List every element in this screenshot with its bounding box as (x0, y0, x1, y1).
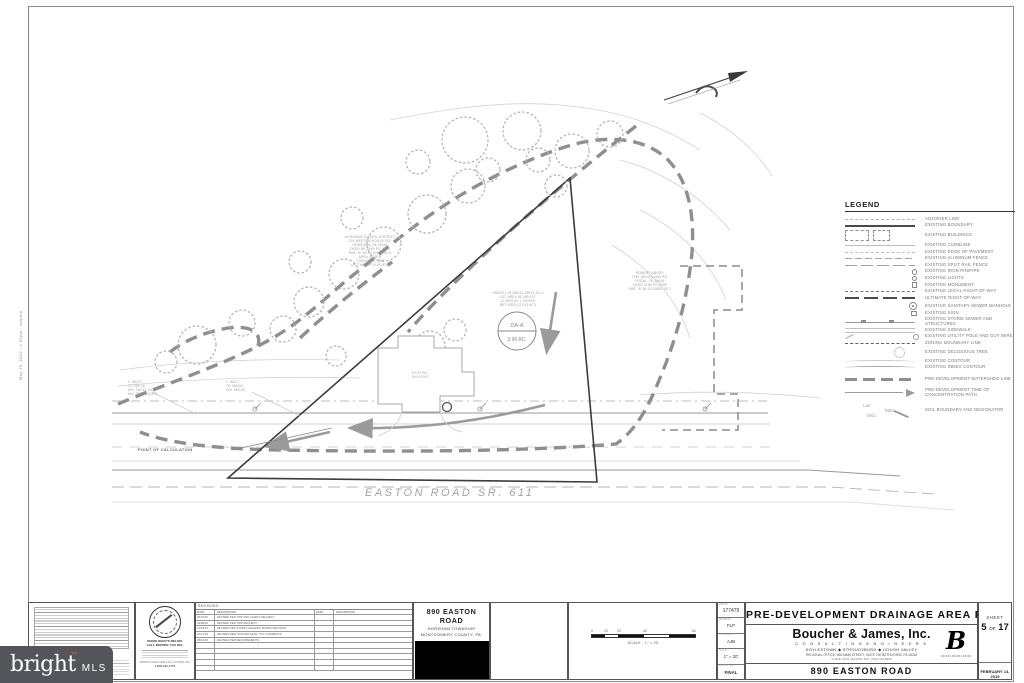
watershed-line-symbol (845, 378, 919, 381)
sanitary-sewer-manhole-symbol (845, 302, 919, 310)
da-label: DA-A (510, 323, 523, 329)
aluminum-fence-symbol (845, 258, 919, 259)
lights-symbol (845, 276, 919, 282)
storm-sewer-symbol (845, 322, 919, 323)
sheet-number: 5 OF 17 (979, 622, 1011, 633)
legend-item: EXISTING DECIDUOUS TREE (845, 347, 1015, 358)
job-info-column: JOB NO. 177479 DRAWN BY: FLP CHECKED BY:… (717, 602, 745, 680)
bj-logo-icon: B (941, 628, 971, 654)
utility-poles (253, 403, 711, 411)
adjoiner-line-symbol (845, 219, 919, 220)
plan-sheet: DA-A 3.96 AC. EASTON ROAD SR. 611 HORSHA… (0, 0, 1024, 683)
da-area-value: 3.96 AC. (507, 337, 526, 343)
graphic-scale-bar (591, 634, 696, 638)
adjoiner-owner-annotation: ROBERT AMORY 7494 WOODLAND RD. RYDAL, PA… (602, 271, 698, 291)
legend-panel: LEGEND ADJOINER LINE EXISTING BOUNDARY E… (845, 200, 1015, 419)
engineering-firm-block: Boucher & James, Inc. C O N S U L T I N … (746, 624, 977, 663)
monument-symbol (845, 282, 919, 288)
bright-accent-dot-icon: ™ (70, 651, 78, 660)
sign-symbol (845, 311, 919, 316)
project-township: HORSHAM TOWNSHIP (414, 626, 489, 631)
revisions-title: REVISIONS: (196, 603, 412, 610)
zoning-boundary-symbol (845, 343, 919, 344)
curbline-symbol (845, 245, 919, 246)
legend-item: ULTIMATE RIGHT-OF-WAY (845, 295, 1015, 302)
legend-item: EXISTING ALUMINUM FENCE (845, 255, 1015, 262)
existing-boundary-symbol (845, 225, 919, 227)
inlet-annotation-left: 1' INLET TG 368.26 INV. 363.67 (IN) INV.… (128, 380, 180, 396)
north-arrow-icon (664, 71, 748, 104)
time-of-concentration-symbol (845, 392, 919, 393)
split-rail-fence-symbol (845, 265, 919, 266)
checked-by-cell: CHECKED BY: AJB (718, 634, 744, 649)
legend-item: EXISTING LIGHTS (845, 275, 1015, 282)
bright-wordmark: bright ™ (10, 652, 76, 677)
contour-symbol (845, 360, 919, 363)
legend-item: EXISTING BUILDINGS (845, 229, 1015, 242)
iron-pin-symbol (845, 269, 919, 275)
status-cell: PLOT STYLE: FINAL (718, 665, 744, 679)
legend-item: EXISTING LEGAL RIGHT-OF-WAY (845, 288, 1015, 295)
index-contour-symbol (845, 366, 919, 369)
plot-file-stamp: May 29, 2019 - 1:05pm - mcphie (18, 200, 23, 380)
project-name-row: 890 EASTON ROAD (746, 663, 977, 679)
disclaimer-fine-print (34, 607, 129, 649)
pa-one-call-seal-icon (149, 606, 181, 638)
firm-logo: B (941, 628, 971, 657)
legend-item: PRE-DEVELOPMENT WATERSHED LINE (845, 376, 1015, 383)
project-location-box: 890 EASTON ROAD HORSHAM TOWNSHIP MONTGOM… (413, 602, 490, 680)
deciduous-tree-symbol (845, 347, 919, 358)
date-cell: FEBRUARY 14, 2019 (979, 662, 1011, 679)
drawing-title: PRE-DEVELOPMENT DRAINAGE AREA PLAN (746, 609, 977, 621)
firm-website-line (941, 655, 971, 657)
scale-cell: SCALE: 1" = 20' (718, 649, 744, 664)
sheet-date: FEBRUARY 14, 2019 (979, 669, 1011, 679)
firm-phone: VOICE: (610) 419-8407 FAX: (610) 419-840… (746, 657, 977, 661)
scale-caption: SCALE : 1" = 20' (591, 641, 696, 645)
scale-bar-box: 0 10 20 40 60 SCALE : 1" = 20' (568, 602, 717, 680)
edge-of-pavement-symbol (845, 252, 919, 253)
scale-bar-ticks: 0 10 20 40 60 (591, 629, 696, 634)
legend-item: ZONING BOUNDARY LINE (845, 340, 1015, 347)
one-call-phone-text: 1-800-242-1776 (136, 664, 194, 668)
legend-item: EXISTING STORM SEWER AND STRUCTURES (845, 317, 1015, 327)
drawing-title-block: PRE-DEVELOPMENT DRAINAGE AREA PLAN Bouch… (745, 602, 978, 680)
empty-titleblock-cell (490, 602, 568, 680)
existing-buildings-symbol (845, 230, 919, 241)
legend-title: LEGEND (845, 200, 1015, 209)
inlet-annotation-right: 1' INLET TG 368.84 INV. 364.43 (226, 380, 282, 392)
existing-building-label: EXISTING BUILDING (396, 371, 444, 379)
school-district-annotation: HORSHAM SCHOOL DISTRICT 229 MEETINGHOUSE… (312, 235, 428, 267)
legend-item: PRE-DEVELOPMENT TIME OF CONCENTRATION PA… (845, 388, 1015, 398)
ultimate-right-of-way-symbol (845, 297, 919, 299)
legend-item: EXISTING SANITARY SEWER MANHOLE (845, 302, 1015, 311)
drainage-area-designator: DA-A 3.96 AC. (498, 312, 536, 350)
revisions-table: REVISIONS: DATE DESCRIPTION DATE DESCRIP… (195, 602, 413, 680)
legend-item: EXISTING CURBLINE (845, 242, 1015, 249)
one-call-box: KNOW WHAT'S BELOW. CALL BEFORE YOU DIG. … (135, 602, 195, 680)
legend-item: EXISTING INDEX CONTOUR (845, 364, 1015, 371)
mls-wordmark: MLS (82, 663, 107, 674)
project-address: 890 EASTON ROAD (414, 607, 489, 625)
well-symbol (443, 403, 452, 412)
redaction-black-bar (415, 641, 489, 679)
drawn-by-cell: DRAWN BY: FLP (718, 618, 744, 633)
legal-right-of-way-symbol (845, 291, 919, 292)
job-number-cell: JOB NO. 177479 (718, 603, 744, 618)
existing-contours (118, 104, 820, 398)
one-call-fine-print (142, 649, 188, 659)
sheet-number-column: SHEET 5 OF 17 FEBRUARY 14, 2019 (978, 602, 1012, 680)
bright-mls-watermark: bright ™ MLS (0, 646, 113, 683)
road-name-label: EASTON ROAD SR. 611 (365, 487, 534, 499)
parcel-annotation: PARCEL ID #36-00-03971-00-4 LOT AREA 91,… (466, 291, 570, 307)
sheet-label: SHEET (979, 615, 1011, 620)
legend-divider (845, 211, 1015, 212)
legend-item: LaCMbCMsCSOIL BOUNDARY AND DESIGNATOR (845, 402, 1015, 419)
call-before-dig-text: CALL BEFORE YOU DIG. (136, 643, 194, 647)
project-county: MONTGOMERY COUNTY, PA. (414, 632, 489, 637)
legend-item: EXISTING BOUNDARY (845, 223, 1015, 230)
sidewalk-symbol (845, 328, 919, 333)
soil-boundary-symbol: LaCMbCMsC (845, 403, 919, 419)
utility-pole-symbol (845, 334, 919, 340)
revision-row-empty (196, 666, 412, 672)
point-of-calculation-label: POINT OF CALCULATION (138, 447, 232, 452)
